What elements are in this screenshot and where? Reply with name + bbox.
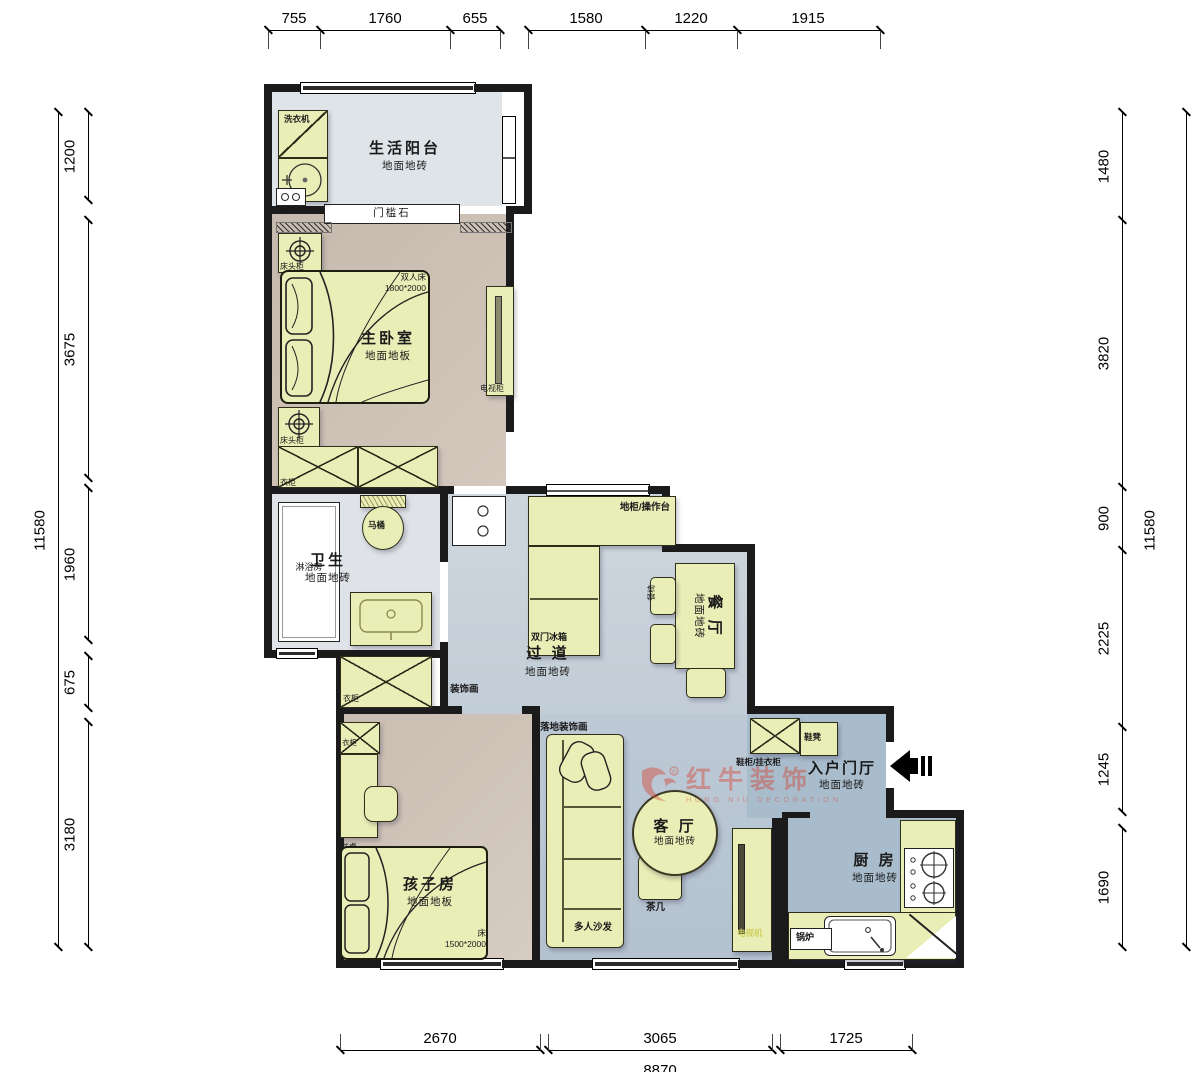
dim-line-bottom-1725 (780, 1050, 912, 1051)
wall-art-stub (440, 658, 448, 710)
ext-line (540, 1034, 541, 1050)
counter-label: 地柜/操作台 (560, 502, 670, 513)
washing-machine-label: 洗衣机 (284, 114, 310, 124)
dim-right-1480: 1480 (1096, 137, 1113, 197)
master-floor-label: 地面地板 (344, 350, 432, 363)
wall-left-main (264, 84, 272, 658)
dining-chair-3 (686, 668, 726, 698)
living-window (592, 958, 740, 970)
ext-line (528, 31, 529, 49)
dining-room-label: 餐 厅 地面地砖 (687, 561, 723, 671)
sofa-pillows (556, 738, 622, 804)
ext-line (912, 1034, 913, 1050)
dim-line-right-1480 (1122, 112, 1123, 220)
wall-bath-right-upper (440, 486, 448, 562)
art-label: 装饰画 (450, 684, 479, 695)
dim-line-bottom-2670 (340, 1050, 540, 1051)
balcony-drain-circles (276, 188, 306, 206)
kids-floor-label: 地面地板 (388, 896, 472, 909)
ext-line (645, 31, 646, 49)
nightstand-bottom-lamp-icon (285, 410, 313, 438)
kids-name: 孩子房 (388, 876, 472, 894)
dim-left-total: 11580 (32, 501, 49, 561)
balcony-right-window (502, 116, 516, 204)
dim-line-right-2225 (1122, 550, 1123, 727)
hall-name: 过 道 (508, 645, 588, 663)
dim-line-bottom-3065 (548, 1050, 772, 1051)
washbasin (354, 596, 428, 642)
dim-right-total: 11580 (1142, 501, 1159, 561)
bathroom-name: 卫生 (296, 552, 360, 570)
shoe-cabinet (750, 718, 800, 754)
wall-bottom-4 (904, 960, 964, 968)
kitchen-sink-detail (824, 916, 896, 956)
nightstand-top-lamp-icon (286, 237, 314, 265)
bath-cabinet-knobs (452, 496, 506, 546)
ext-line (450, 31, 451, 49)
dim-right-3820: 3820 (1096, 324, 1113, 384)
floorplan-canvas: 门槛石 洗衣机 生活阳台 地面地砖 (0, 0, 1200, 1072)
dim-line-right-1245 (1122, 727, 1123, 812)
living-floor-label: 地面地砖 (654, 836, 696, 847)
dim-line-left-3675 (88, 220, 89, 478)
bathroom-floor-label: 地面地砖 (290, 572, 366, 585)
wall-balcony-right (524, 84, 532, 214)
dining-chair-2 (650, 624, 676, 664)
shoe-bench-label: 鞋凳 (804, 732, 821, 742)
dim-top-655: 655 (448, 10, 502, 27)
dim-bottom-2670: 2670 (405, 1030, 475, 1047)
kitchen-floor-label: 地面地砖 (839, 872, 911, 885)
dining-window (546, 484, 650, 496)
kids-wardrobe-upper-label: 衣柜 (343, 694, 359, 704)
dim-right-2225: 2225 (1096, 609, 1113, 669)
ext-line (737, 31, 738, 49)
kids-bed-size: 1500*2000 (445, 939, 486, 949)
sofa-label: 多人沙发 (562, 922, 624, 933)
wall-balcony-bedroom-left (264, 206, 324, 214)
dim-top-755: 755 (264, 10, 324, 27)
dim-line-top-1 (268, 30, 500, 31)
wall-bottom-3 (738, 960, 846, 968)
curtain-hatch-right (460, 222, 512, 233)
floor-art-label: 落地装饰画 (540, 722, 588, 733)
threshold-label: 门槛石 (324, 207, 460, 220)
dim-left-1200: 1200 (62, 127, 79, 187)
toilet-label: 马桶 (368, 520, 385, 530)
kids-bed-name: 床 (477, 928, 486, 938)
wall-bottom-2 (502, 960, 594, 968)
master-wardrobe-label: 衣柜 (280, 478, 296, 488)
kids-bed-label: 床 1500*2000 (420, 928, 486, 950)
dim-right-1245: 1245 (1096, 740, 1113, 800)
dim-right-900: 900 (1096, 489, 1113, 549)
dim-line-right-3820 (1122, 220, 1123, 487)
double-bed-size: 1800*2000 (385, 283, 426, 293)
tv-cabinet-label: 电视柜 (480, 384, 504, 394)
hall-floor-label: 地面地砖 (512, 666, 584, 679)
brand-name: 红牛装饰 (686, 765, 842, 795)
sofa-cushion-line-2 (563, 858, 621, 860)
dim-line-right-900 (1122, 487, 1123, 550)
dim-line-right-1690 (1122, 828, 1123, 947)
wall-entry-right-upper (886, 706, 894, 742)
dim-line-top-2 (528, 30, 880, 31)
double-bed-name: 双人床 (400, 272, 426, 282)
dining-floor-label: 地面地砖 (692, 561, 705, 671)
ext-line (320, 31, 321, 49)
dim-left-3675: 3675 (62, 320, 79, 380)
wall-living-kitchen (772, 818, 788, 964)
dim-line-left-total (58, 112, 59, 947)
master-wardrobe-right (358, 446, 438, 488)
balcony-top-window (300, 82, 476, 94)
balcony-name: 生活阳台 (345, 140, 465, 158)
dim-line-right-total (1186, 112, 1187, 947)
dim-right-1690: 1690 (1096, 858, 1113, 918)
dim-top-1760: 1760 (350, 10, 420, 27)
dim-top-1580: 1580 (551, 10, 621, 27)
tv-screen (738, 844, 745, 934)
ext-line (772, 1034, 773, 1050)
boiler-label: 锅炉 (796, 932, 814, 943)
bath-window (276, 648, 318, 659)
living-name: 客 厅 (653, 818, 696, 836)
dim-bottom-1725: 1725 (811, 1030, 881, 1047)
bull-logo-icon: R (636, 763, 680, 805)
entry-arrow-bar-1 (921, 756, 925, 776)
ext-line (268, 31, 269, 49)
wall-dining-top-left (506, 486, 546, 494)
dim-left-1960: 1960 (62, 535, 79, 595)
ext-line (340, 1034, 341, 1050)
entry-arrow-stem (909, 758, 918, 774)
tv-label: 电视机 (737, 928, 763, 938)
brand-sub: HONG NIU DECORATION (686, 795, 842, 804)
dim-line-left-1960 (88, 488, 89, 640)
fridge-label: 双门冰箱 (531, 632, 597, 643)
ext-line (548, 1034, 549, 1050)
curtain-hatch-left (276, 222, 332, 233)
wall-step-vert-2 (747, 544, 755, 714)
dim-top-1220: 1220 (656, 10, 726, 27)
entry-arrow-bar-2 (928, 756, 932, 776)
ext-line (880, 31, 881, 49)
nightstand-bottom-label: 床头柜 (280, 436, 304, 446)
sofa-cushion-line-3 (563, 908, 621, 910)
wall-kitchen-right (956, 810, 964, 968)
dining-chair-label: 餐椅 (647, 585, 657, 601)
dim-top-1915: 1915 (773, 10, 843, 27)
tea-table-label: 茶几 (646, 902, 665, 913)
tv-cabinet-tv (495, 296, 502, 384)
balcony-floor-label: 地面地砖 (353, 160, 457, 173)
dim-line-left-675 (88, 656, 89, 708)
wall-entry-top (747, 706, 894, 714)
dim-bottom-3065: 3065 (625, 1030, 695, 1047)
brand-watermark: R 红牛装饰 HONG NIU DECORATION (636, 760, 846, 808)
wall-kids-right (532, 706, 540, 968)
fridge-divider (530, 598, 598, 600)
kids-wardrobe-lower-label: 衣柜 (342, 738, 357, 747)
dim-line-left-3180 (88, 722, 89, 947)
sofa-cushion-line-1 (563, 806, 621, 808)
svg-text:R: R (672, 770, 677, 776)
desk-chair (364, 786, 398, 822)
dim-left-675: 675 (62, 653, 79, 713)
dim-bottom-total-partial: 8870 (625, 1062, 695, 1072)
dim-left-3180: 3180 (62, 805, 79, 865)
double-bed-label: 双人床 1800*2000 (352, 272, 426, 294)
kitchen-name: 厨 房 (832, 852, 918, 870)
ext-line (780, 1034, 781, 1050)
wall-kitchen-top (886, 810, 964, 818)
master-name: 主卧室 (338, 330, 438, 348)
dining-name: 餐 厅 (705, 561, 723, 671)
entry-arrow-icon (890, 750, 910, 782)
ext-line (500, 31, 501, 49)
dim-line-left-1200 (88, 112, 89, 200)
